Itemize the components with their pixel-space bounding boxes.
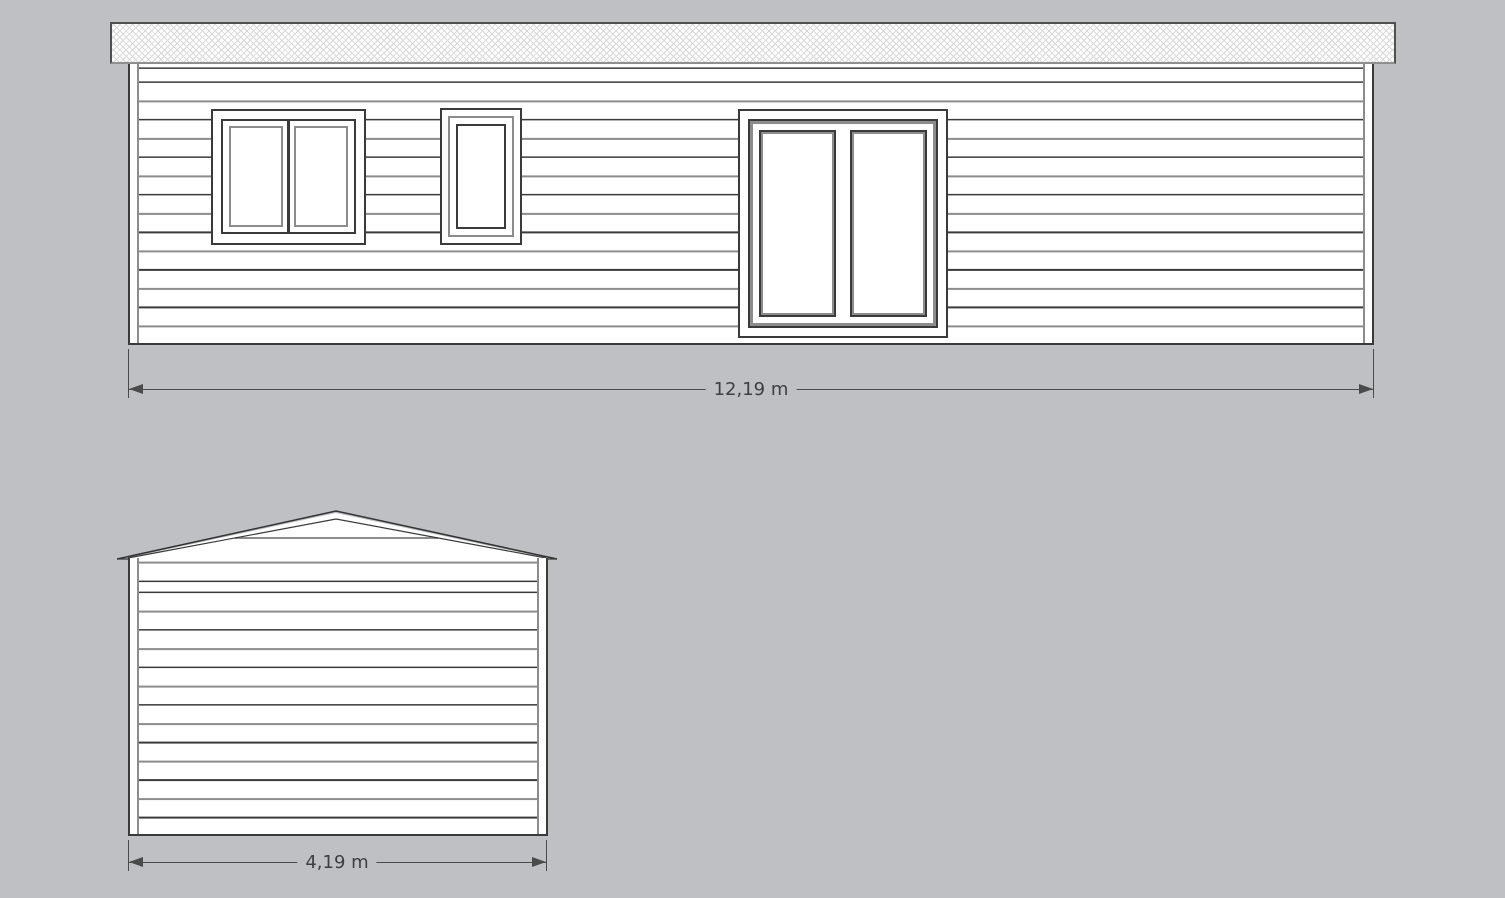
double-window-mullion <box>287 121 290 232</box>
gable-roof <box>100 504 570 560</box>
side-siding-lines <box>139 558 537 832</box>
double-window-frame <box>221 119 356 234</box>
side-right-corner-trim <box>537 558 539 834</box>
front-roof-fascia <box>110 22 1396 64</box>
double-door-frame <box>748 119 938 328</box>
side-left-corner-trim <box>137 558 139 834</box>
small-window-sash <box>456 124 506 229</box>
drawing-canvas: 12,19 m 4,19 m <box>0 0 1505 898</box>
front-dim-arrow-right-icon <box>1359 384 1373 394</box>
double-door-left-panel <box>759 130 836 317</box>
small-window-frame <box>448 116 514 237</box>
side-dim-arrow-right-icon <box>532 857 546 867</box>
front-dimension-label: 12,19 m <box>706 379 797 401</box>
small-window <box>440 108 522 245</box>
double-window-right-sash <box>294 126 348 227</box>
double-door-mullion <box>839 127 847 320</box>
double-window-left-sash <box>229 126 283 227</box>
side-dim-extension-right <box>546 840 547 871</box>
front-dim-arrow-left-icon <box>129 384 143 394</box>
double-door <box>738 109 948 338</box>
side-wall <box>128 558 548 836</box>
front-dim-extension-right <box>1373 349 1374 398</box>
front-left-corner-trim <box>137 64 139 343</box>
front-wall <box>128 64 1374 345</box>
double-door-right-panel <box>850 130 927 317</box>
front-right-corner-trim <box>1363 64 1365 343</box>
double-window <box>211 109 366 245</box>
side-dim-arrow-left-icon <box>129 857 143 867</box>
side-dimension-label: 4,19 m <box>297 852 376 874</box>
